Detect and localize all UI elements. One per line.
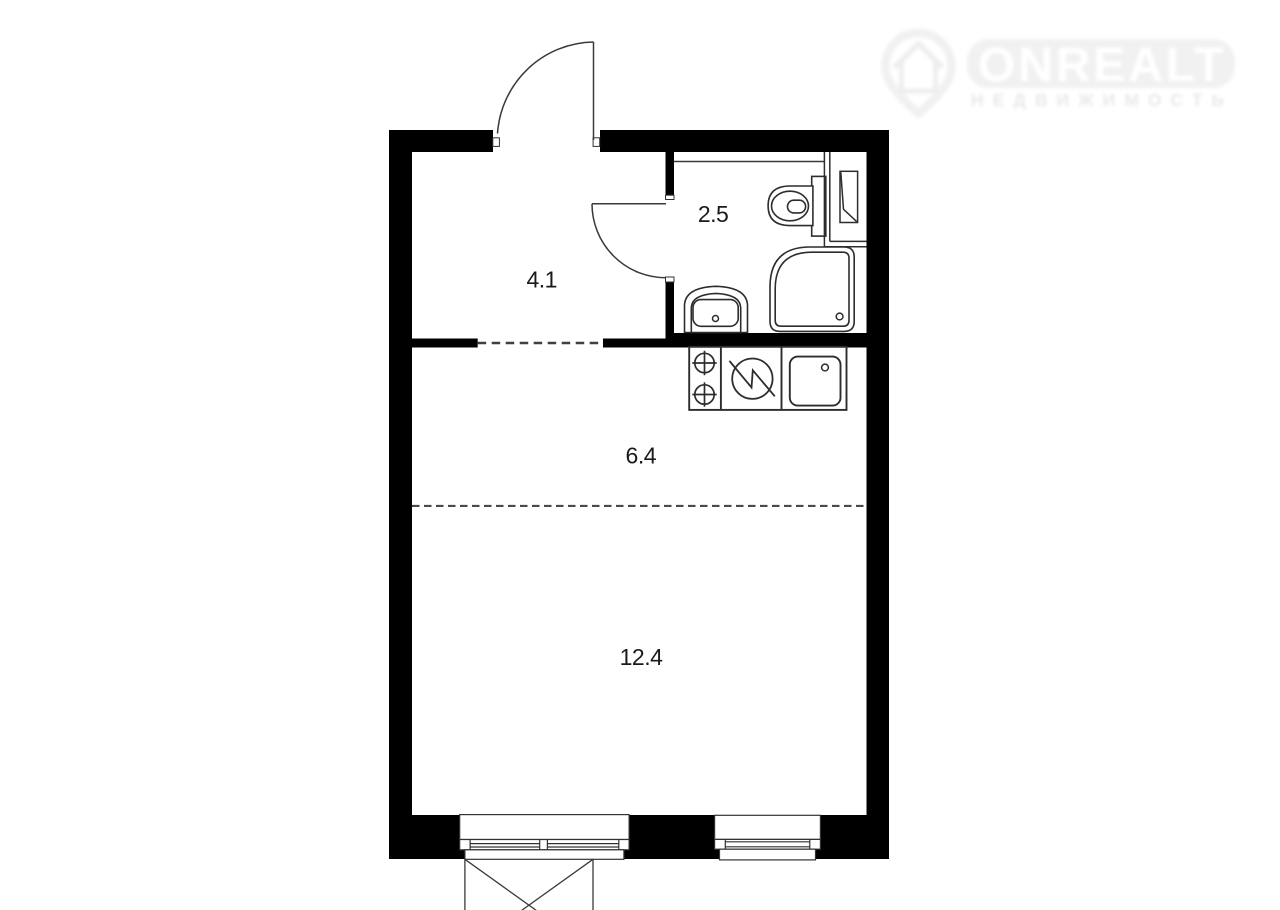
svg-text:4.1: 4.1: [526, 267, 556, 293]
svg-text:2.5: 2.5: [698, 201, 728, 227]
svg-text:НЕДВИЖИМОСТЬ: НЕДВИЖИМОСТЬ: [971, 90, 1233, 110]
svg-text:6.4: 6.4: [626, 442, 657, 468]
svg-text:ONREALT: ONREALT: [978, 38, 1226, 92]
svg-text:12.4: 12.4: [620, 644, 663, 670]
